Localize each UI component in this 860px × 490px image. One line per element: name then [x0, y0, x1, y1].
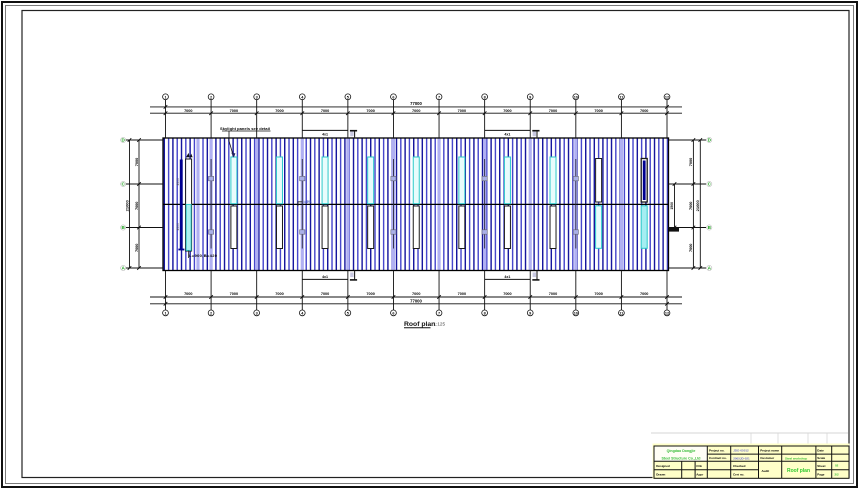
svg-text:7000: 7000 — [321, 292, 329, 296]
svg-text:7000: 7000 — [230, 109, 238, 113]
svg-text:7: 7 — [438, 311, 440, 315]
svg-text:8: 8 — [484, 311, 486, 315]
svg-text:7000: 7000 — [412, 109, 420, 113]
svg-text:77000: 77000 — [410, 101, 422, 106]
svg-text:9: 9 — [529, 311, 531, 315]
svg-text:7000: 7000 — [689, 202, 693, 210]
svg-text:8: 8 — [484, 95, 486, 99]
svg-text:7000: 7000 — [594, 109, 602, 113]
svg-text:11: 11 — [619, 311, 623, 315]
svg-text:9: 9 — [529, 95, 531, 99]
svg-text:7000: 7000 — [412, 292, 420, 296]
svg-text:4500: 4500 — [176, 223, 180, 231]
svg-text:77000: 77000 — [410, 299, 422, 304]
svg-text:7000: 7000 — [689, 244, 693, 252]
svg-text:7000: 7000 — [135, 202, 139, 210]
svg-text:6: 6 — [392, 311, 394, 315]
svg-text:Skylight panels see detail: Skylight panels see detail — [220, 126, 270, 131]
svg-text:L=900,B=420: L=900,B=420 — [189, 253, 218, 258]
svg-text:02: 02 — [835, 464, 839, 468]
svg-text:Page: Page — [817, 472, 825, 476]
svg-text:10: 10 — [574, 311, 578, 315]
svg-text:1: 1 — [164, 95, 166, 99]
svg-text:2: 2 — [210, 311, 212, 315]
svg-text:1500: 1500 — [670, 202, 674, 210]
svg-text:21000: 21000 — [695, 199, 700, 211]
svg-text:Project no.: Project no. — [709, 448, 725, 452]
svg-text:7000: 7000 — [135, 244, 139, 252]
svg-text:Designed: Designed — [656, 464, 670, 468]
svg-text:7000: 7000 — [549, 292, 557, 296]
svg-text:7000: 7000 — [689, 158, 693, 166]
svg-text:7000: 7000 — [275, 109, 283, 113]
svg-text:4x1: 4x1 — [504, 275, 510, 279]
svg-text:7000: 7000 — [366, 109, 374, 113]
svg-text:Steel Structure Co.,Ltd: Steel Structure Co.,Ltd — [662, 456, 701, 460]
svg-text:3: 3 — [256, 95, 258, 99]
svg-text:7000: 7000 — [503, 292, 511, 296]
svg-text:4x1: 4x1 — [322, 275, 328, 279]
svg-text:7000: 7000 — [184, 109, 192, 113]
svg-text:Checked: Checked — [733, 464, 746, 468]
svg-text:Steel workshop: Steel workshop — [785, 457, 807, 461]
svg-text:Project name: Project name — [760, 448, 779, 452]
svg-text:21000: 21000 — [124, 199, 129, 211]
svg-text:2/2: 2/2 — [835, 473, 840, 477]
svg-text:7000: 7000 — [458, 109, 466, 113]
svg-text:7000: 7000 — [640, 109, 648, 113]
svg-text:2: 2 — [210, 95, 212, 99]
svg-text:Cert no.: Cert no. — [733, 472, 745, 476]
svg-text:JDG-05012: JDG-05012 — [733, 449, 749, 453]
svg-text:2005JD-021: 2005JD-021 — [733, 456, 750, 460]
svg-text:Appr: Appr — [696, 472, 704, 476]
svg-text:Drawn: Drawn — [656, 472, 665, 476]
svg-text:Qingdao Dongjie: Qingdao Dongjie — [667, 449, 696, 453]
svg-text:5: 5 — [347, 311, 349, 315]
svg-text:7000: 7000 — [594, 292, 602, 296]
svg-text:7000: 7000 — [135, 158, 139, 166]
svg-text:10: 10 — [574, 95, 578, 99]
svg-text:7000: 7000 — [458, 292, 466, 296]
svg-text:5: 5 — [347, 95, 349, 99]
svg-text:Roof plan: Roof plan — [787, 468, 810, 474]
svg-text:Chk: Chk — [696, 464, 702, 468]
svg-text:7000: 7000 — [549, 109, 557, 113]
svg-text:12: 12 — [665, 311, 669, 315]
svg-text:7000: 7000 — [366, 292, 374, 296]
svg-text:4x1: 4x1 — [504, 133, 510, 137]
svg-text:4500: 4500 — [176, 178, 180, 186]
svg-text:Sheet: Sheet — [817, 464, 825, 468]
svg-text:4x1: 4x1 — [322, 133, 328, 137]
svg-text:7000: 7000 — [640, 292, 648, 296]
svg-text:7000: 7000 — [230, 292, 238, 296]
svg-text:Audit: Audit — [762, 469, 770, 473]
svg-text:1: 1 — [164, 311, 166, 315]
svg-text:i=5%: i=5% — [304, 200, 313, 204]
svg-text:Roof plan: Roof plan — [404, 321, 435, 328]
svg-text:Scale: Scale — [817, 456, 825, 460]
svg-text:11: 11 — [619, 95, 623, 99]
svg-text:7000: 7000 — [275, 292, 283, 296]
svg-text:Date: Date — [817, 448, 824, 452]
svg-text:7000: 7000 — [184, 292, 192, 296]
svg-text:12: 12 — [665, 95, 669, 99]
svg-text:7: 7 — [438, 95, 440, 99]
svg-text:6: 6 — [392, 95, 394, 99]
svg-text:7000: 7000 — [503, 109, 511, 113]
svg-text:7000: 7000 — [321, 109, 329, 113]
svg-text:3: 3 — [256, 311, 258, 315]
svg-text:Customer: Customer — [760, 456, 775, 460]
svg-text:1:125: 1:125 — [434, 322, 446, 327]
svg-text:Contract no.: Contract no. — [709, 456, 727, 460]
